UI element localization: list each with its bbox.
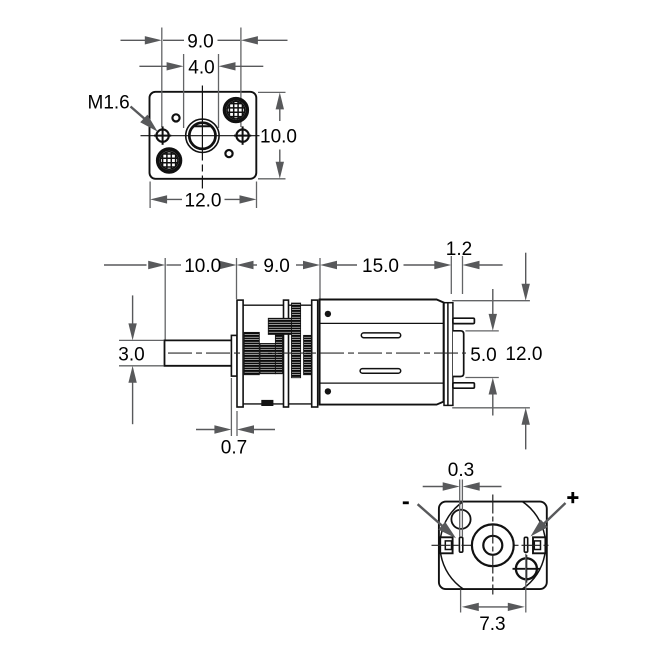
svg-text:10.0: 10.0 <box>184 256 221 277</box>
svg-text:4.0: 4.0 <box>188 57 214 78</box>
svg-text:0.7: 0.7 <box>221 438 247 459</box>
svg-text:9.0: 9.0 <box>263 256 289 277</box>
svg-text:7.3: 7.3 <box>479 614 505 635</box>
svg-text:15.0: 15.0 <box>362 256 399 277</box>
svg-text:1.2: 1.2 <box>446 239 472 260</box>
svg-text:12.0: 12.0 <box>185 190 222 211</box>
svg-text:9.0: 9.0 <box>187 31 213 52</box>
svg-text:M1.6: M1.6 <box>88 93 130 114</box>
svg-text:0.3: 0.3 <box>448 460 474 481</box>
svg-text:5.0: 5.0 <box>470 345 496 366</box>
svg-text:3.0: 3.0 <box>118 344 144 365</box>
svg-text:12.0: 12.0 <box>505 344 542 365</box>
svg-text:10.0: 10.0 <box>260 127 297 148</box>
